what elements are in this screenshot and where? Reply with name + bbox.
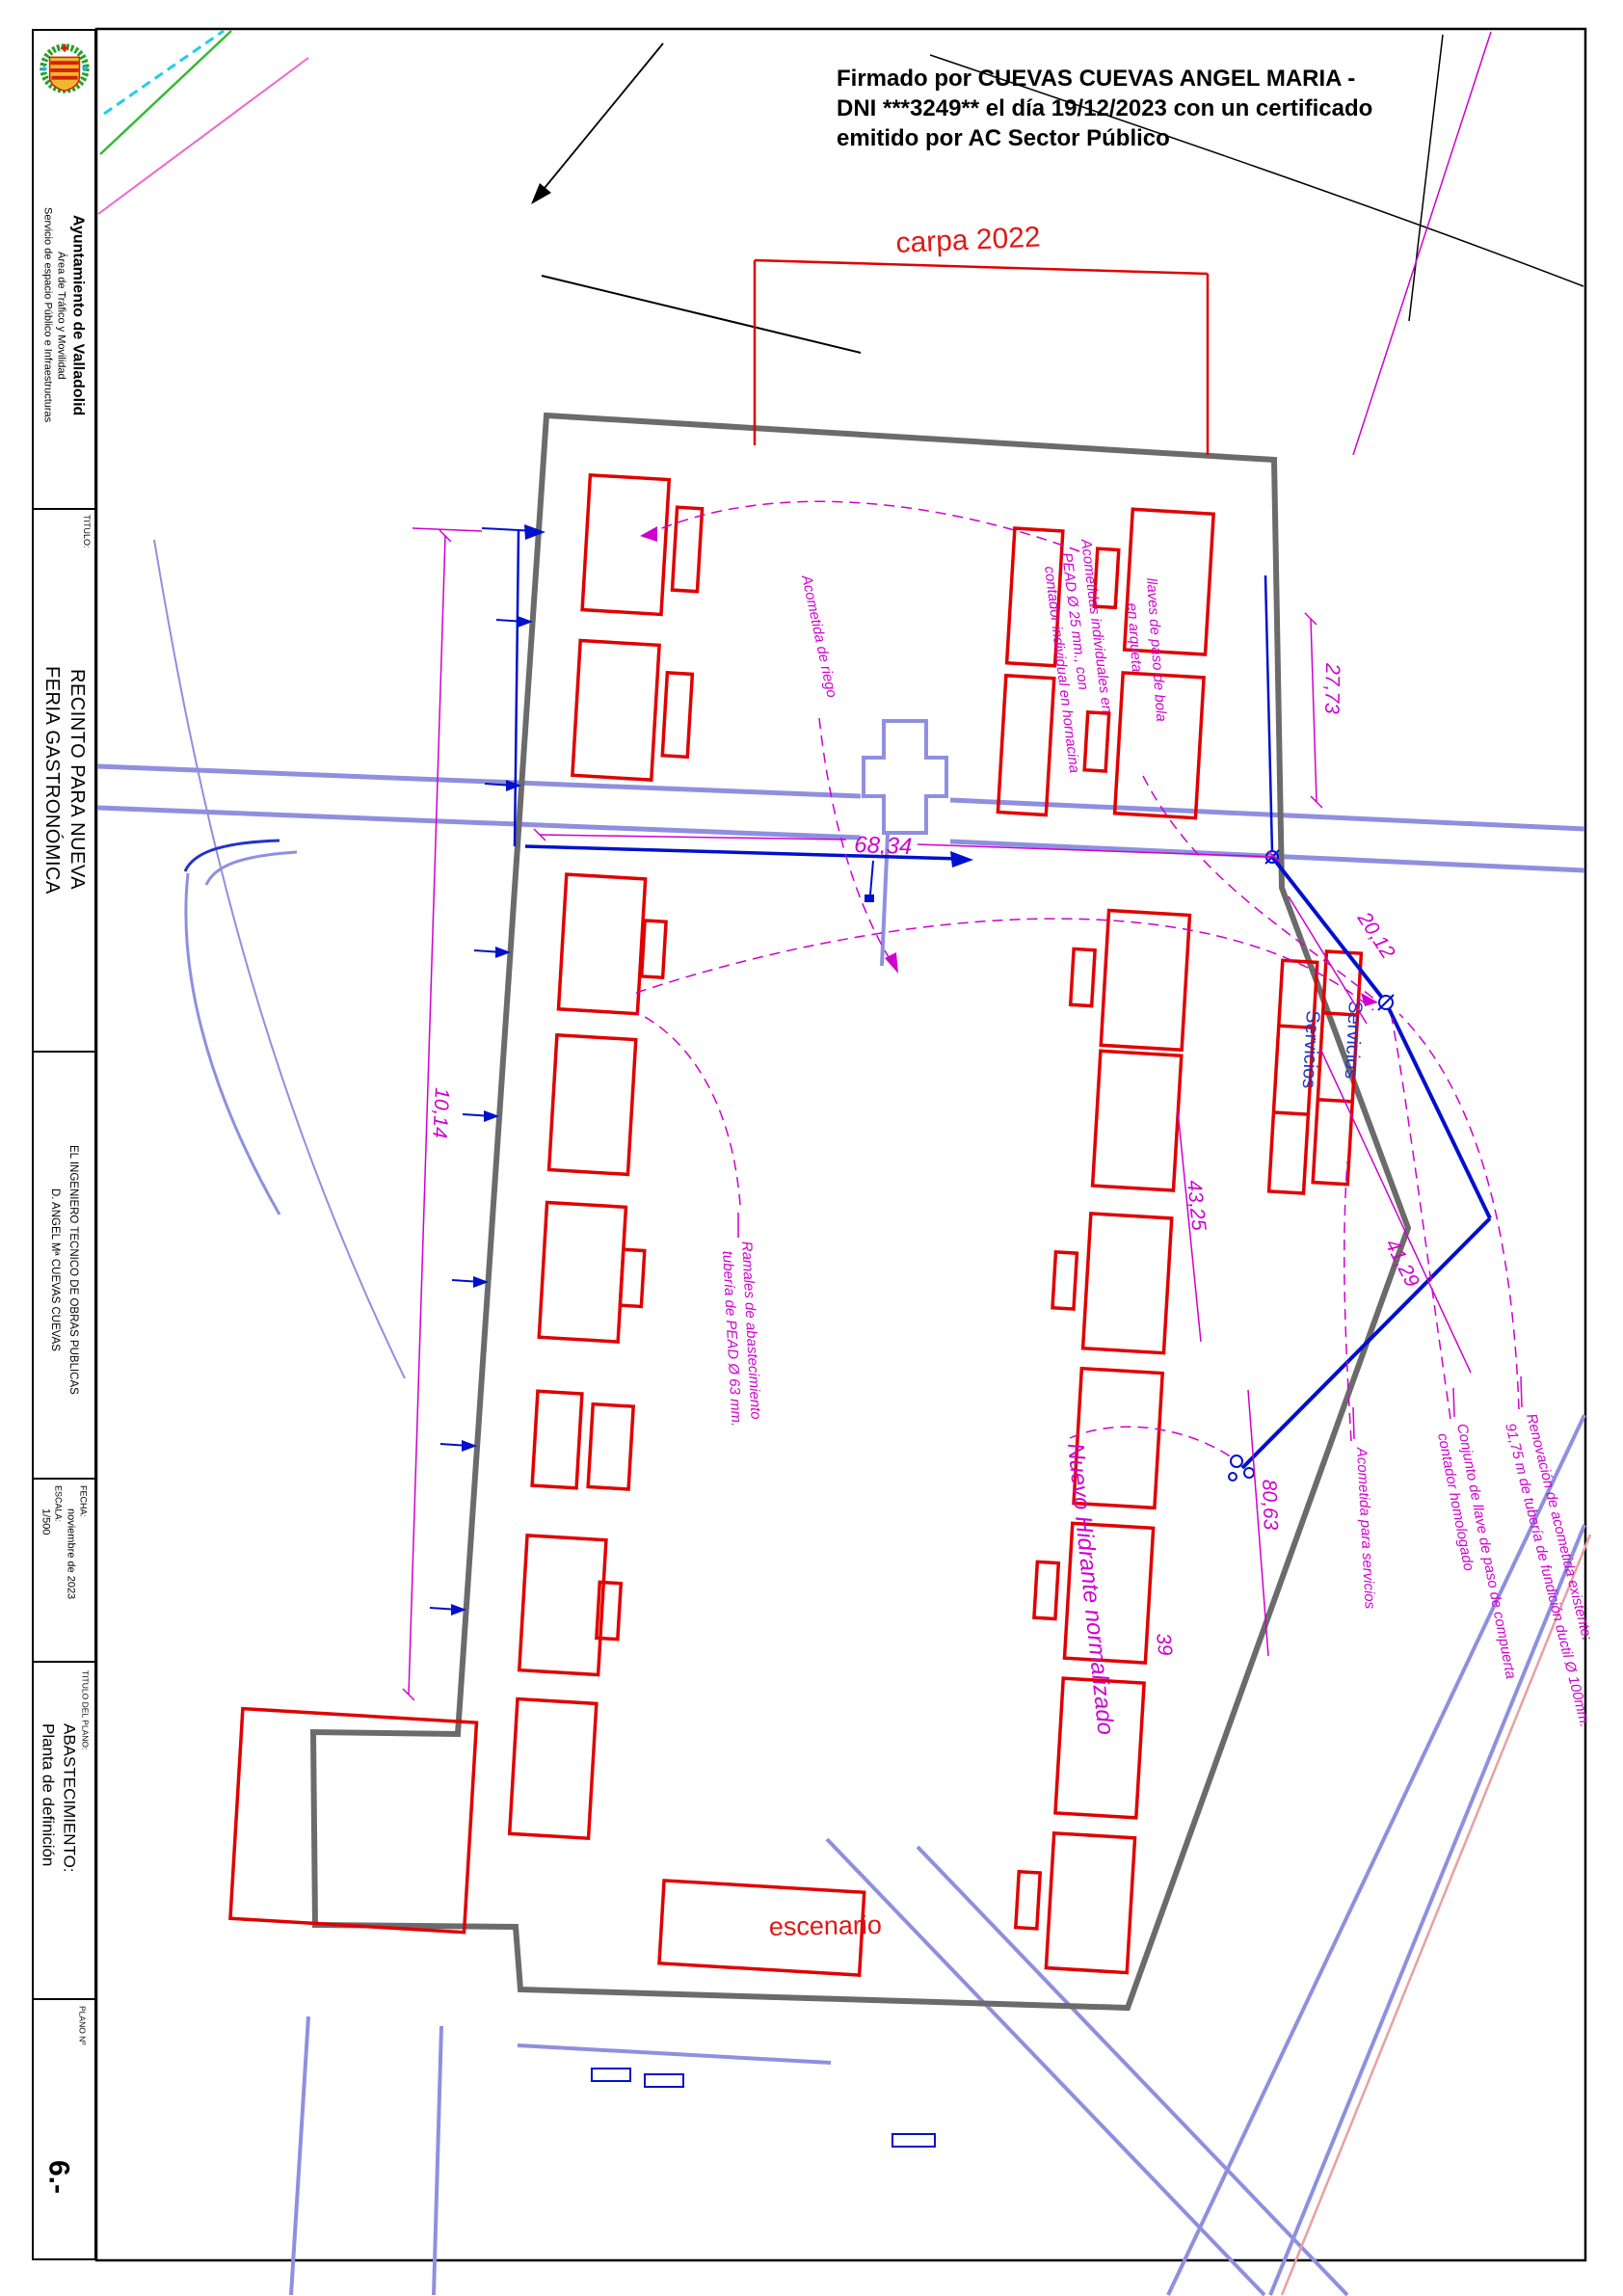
street-bottom-left-2 xyxy=(434,2026,441,2295)
stall xyxy=(582,475,669,615)
street-bottom-right-2 xyxy=(1270,1525,1584,2295)
title-block-meta-section: FECHA: noviembre de 2023 ESCALA: 1/500 xyxy=(34,1480,94,1663)
sheet-number-value: 6.- xyxy=(42,2006,75,2253)
riego-arrow-head xyxy=(524,524,545,540)
hidrante-label: Nuevo Hidrante normalizado xyxy=(1062,1442,1119,1736)
title-block-engineer-section: EL INGENIERO TECNICO DE OBRAS PUBLICAS D… xyxy=(34,1053,94,1480)
sheet-title-line-2: Planta de definición xyxy=(39,1670,58,1993)
sheet-title-text: TITULO DEL PLANO: ABASTECIMIENTO: Planta… xyxy=(37,1670,93,1993)
north-arrow-line xyxy=(536,43,663,199)
dim-39: 39 xyxy=(1152,1632,1176,1657)
plan-canvas: carpa 2022 escenario Servicios Servicios… xyxy=(0,0,1623,2296)
stall xyxy=(642,921,666,977)
salmon-street-line xyxy=(1282,1535,1590,2295)
stall xyxy=(1071,948,1095,1005)
stall xyxy=(1016,1872,1040,1929)
escenario-label: escenario xyxy=(769,1910,883,1941)
signature-line-2: DNI ***3249** el día 19/12/2023 con un c… xyxy=(837,93,1372,123)
drawing-sheet: carpa 2022 escenario Servicios Servicios… xyxy=(0,0,1623,2296)
pink-utility-line xyxy=(98,58,308,214)
green-utility-line xyxy=(100,31,231,154)
org-service: Servicio de espacio Público e Infraestru… xyxy=(42,171,54,460)
title-block-title-section: TITULO: RECINTO PARA NUEVA FERIA GASTRON… xyxy=(34,510,94,1053)
stall xyxy=(1034,1562,1058,1618)
stall xyxy=(558,874,645,1014)
street-bottom-left-1 xyxy=(291,2016,308,2295)
dim-10: 10,14 xyxy=(428,1087,453,1139)
leader-stub-servicios xyxy=(1353,1407,1354,1439)
sheet-title-label: TITULO DEL PLANO: xyxy=(81,1670,91,1993)
cyan-utility-line xyxy=(104,31,224,114)
dim-41-line xyxy=(1320,1049,1471,1373)
small-blue-boxes xyxy=(592,2069,935,2147)
sheet-title-line-1: ABASTECIMIENTO: xyxy=(60,1670,79,1993)
carpa-outline xyxy=(755,260,1208,455)
stall xyxy=(588,1404,633,1489)
pipe-stub-end xyxy=(865,894,874,902)
engineer-title: EL INGENIERO TECNICO DE OBRAS PUBLICAS xyxy=(67,1110,79,1428)
sheet-number-label: PLANO Nº xyxy=(78,2006,88,2253)
leader-ramales xyxy=(636,1012,740,1205)
annotation-llaves-l2: en arqueta xyxy=(1124,602,1145,673)
hydrant-branch-pipe xyxy=(1242,1218,1490,1468)
left-curve-2 xyxy=(186,873,279,1215)
stall xyxy=(998,676,1053,815)
signature-line-1: Firmado por CUEVAS CUEVAS ANGEL MARIA - xyxy=(837,64,1372,93)
stall xyxy=(519,1535,606,1675)
dim-80: 80,63 xyxy=(1258,1479,1282,1531)
title-block-sheet-title-section: TITULO DEL PLANO: ABASTECIMIENTO: Planta… xyxy=(34,1663,94,2000)
recinto-outline xyxy=(313,415,1408,2008)
leader-stub-conjunto xyxy=(1453,1388,1454,1417)
stall xyxy=(1052,1252,1077,1309)
carpa-label: carpa 2022 xyxy=(895,221,1041,259)
annotation-acometida-riego: Acometida de riego xyxy=(798,573,840,699)
left-curve-1 xyxy=(206,852,297,885)
title-block-org-section: Ayuntamiento de Valladolid Área de Tráfi… xyxy=(34,31,94,510)
dim-43: 43,25 xyxy=(1183,1179,1210,1232)
tent-bottom-left xyxy=(230,1709,477,1933)
digital-signature: Firmado por CUEVAS CUEVAS ANGEL MARIA - … xyxy=(837,64,1372,153)
black-diagonal xyxy=(1409,35,1443,321)
stall xyxy=(1046,1833,1134,1973)
stall xyxy=(572,640,659,780)
leader-renovacion xyxy=(1399,1014,1519,1409)
plan-labels: carpa 2022 escenario Servicios Servicios… xyxy=(428,221,1595,1941)
street-bottom-stub xyxy=(518,2045,831,2063)
title-block-number-section: PLANO Nº 6.- xyxy=(34,2000,94,2258)
right-riser xyxy=(1265,575,1272,852)
engineer-text: EL INGENIERO TECNICO DE OBRAS PUBLICAS D… xyxy=(42,1110,86,1428)
dim-27-line xyxy=(1311,619,1317,802)
meta-text: FECHA: noviembre de 2023 ESCALA: 1/500 xyxy=(39,1485,91,1657)
black-segment xyxy=(542,276,861,353)
stall xyxy=(539,1202,625,1342)
carpa-top-edge xyxy=(755,260,1208,274)
title-block: Ayuntamiento de Valladolid Área de Tráfi… xyxy=(32,29,96,2260)
project-title: RECINTO PARA NUEVA FERIA GASTRONÓMICA xyxy=(38,568,91,992)
engineer-name: D. ANGEL Mª CUEVAS CUEVAS xyxy=(49,1110,61,1428)
street-diag-right-1 xyxy=(827,1839,1264,2295)
stall xyxy=(1101,911,1189,1051)
fecha-label: FECHA: xyxy=(79,1485,89,1657)
leader-hidrante xyxy=(1070,1427,1232,1457)
left-faint-curve xyxy=(154,540,405,1378)
valladolid-coat-of-arms-icon xyxy=(37,40,93,96)
annotation-acometida-servicios: Acometida para servicios xyxy=(1353,1446,1378,1610)
servicios-label-2: Servicios xyxy=(1341,1001,1366,1080)
dim-27: 27,73 xyxy=(1320,662,1344,714)
titulo-label: TITULO: xyxy=(82,515,92,548)
leader-stub-renovacion xyxy=(1521,1376,1522,1407)
escala-label: ESCALA: xyxy=(54,1485,64,1657)
project-title-line-1: RECINTO PARA NUEVA xyxy=(66,568,88,992)
signature-line-3: emitido por AC Sector Público xyxy=(837,123,1372,153)
stall xyxy=(1093,1051,1182,1190)
servicios-label-1: Servicios xyxy=(1298,1010,1323,1089)
org-name: Ayuntamiento de Valladolid xyxy=(69,171,87,460)
dim-68: 68,34 xyxy=(854,832,913,860)
escala-value: 1/500 xyxy=(40,1485,52,1657)
pipe-arrow xyxy=(950,851,973,868)
org-area: Área de Tráfico y Movilidad xyxy=(56,171,67,460)
stall xyxy=(620,1249,644,1306)
project-title-line-2: FERIA GASTRONÓMICA xyxy=(40,568,63,992)
streets xyxy=(97,31,1590,2295)
stall xyxy=(1084,712,1109,771)
org-text: Ayuntamiento de Valladolid Área de Tráfi… xyxy=(40,171,89,460)
crossing-symbol xyxy=(864,721,946,833)
road-upper-edge xyxy=(97,766,1584,829)
stall xyxy=(532,1391,582,1488)
north-arrow-head xyxy=(531,183,551,204)
leader-acometidas-arc xyxy=(636,919,1373,1010)
fecha-value: noviembre de 2023 xyxy=(66,1485,77,1657)
street-bottom-right-1 xyxy=(1168,1415,1584,2295)
sheet-number-text: PLANO Nº 6.- xyxy=(40,2006,90,2253)
stall xyxy=(549,1035,636,1175)
stall xyxy=(1083,1214,1172,1353)
pipe-stub xyxy=(870,861,873,894)
stall xyxy=(510,1699,597,1839)
stall xyxy=(662,673,692,757)
water-pipes xyxy=(430,524,1490,2147)
street-diag-right-2 xyxy=(918,1847,1347,2295)
